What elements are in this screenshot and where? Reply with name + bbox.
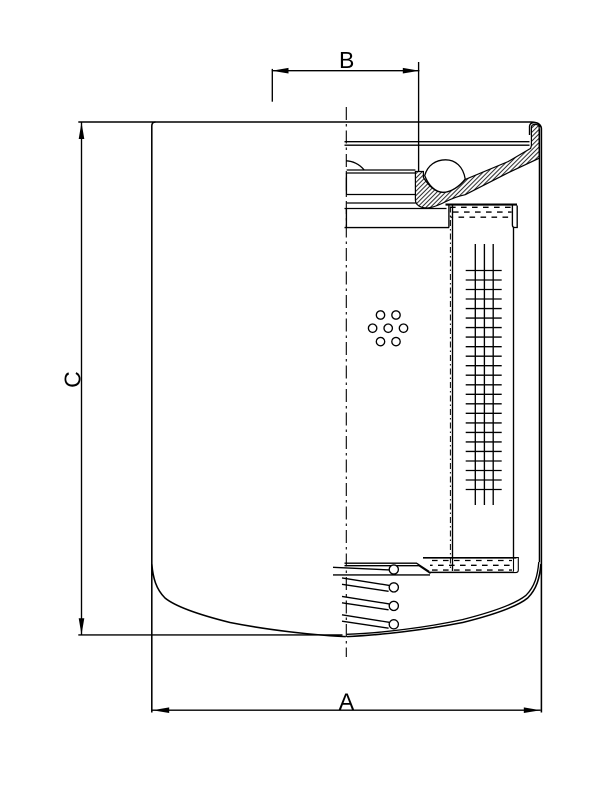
- svg-text:B: B: [339, 47, 354, 73]
